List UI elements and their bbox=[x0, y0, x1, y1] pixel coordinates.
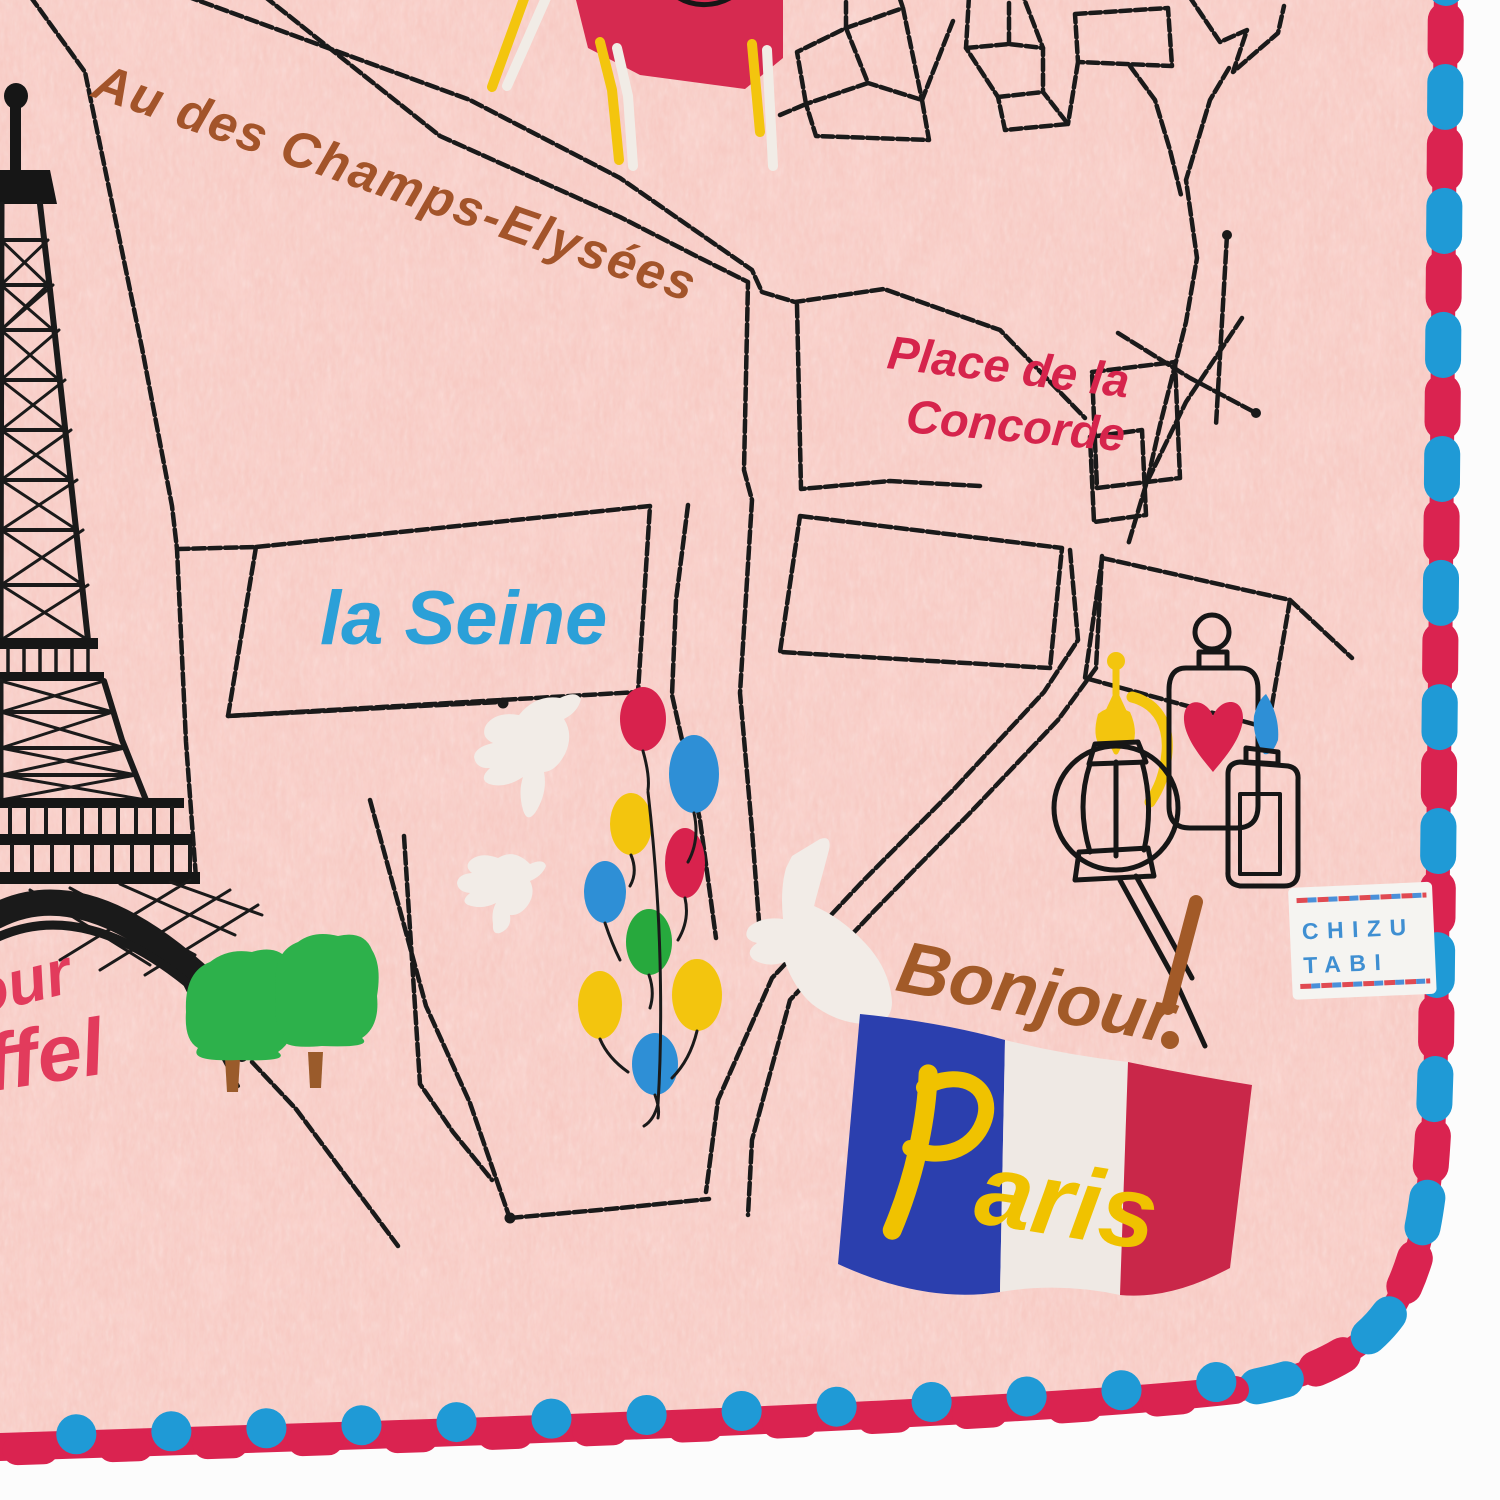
svg-text:CHIZU: CHIZU bbox=[1301, 914, 1415, 945]
svg-text:TABI: TABI bbox=[1303, 949, 1390, 979]
svg-text:la Seine: la Seine bbox=[320, 576, 607, 661]
